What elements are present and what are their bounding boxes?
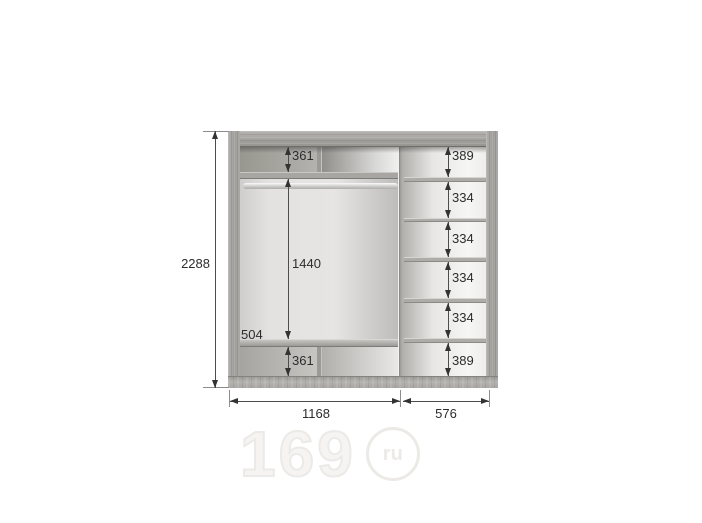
watermark-ru-circle-icon: ru bbox=[366, 427, 420, 481]
watermark-number: 169 bbox=[240, 422, 356, 486]
dim-arrow bbox=[445, 330, 451, 338]
bottom-cubby-divider bbox=[317, 347, 322, 376]
dim-label-right-1: 389 bbox=[452, 149, 474, 162]
dim-arrow bbox=[212, 380, 218, 388]
dim-arrow bbox=[285, 147, 291, 155]
dim-arrow bbox=[285, 179, 291, 187]
dim-arrow bbox=[445, 222, 451, 230]
hanging-rod bbox=[243, 183, 398, 189]
frame-right bbox=[486, 131, 498, 388]
dim-arrow bbox=[285, 164, 291, 172]
dim-arrow bbox=[445, 210, 451, 218]
left-top-shelf bbox=[240, 172, 398, 179]
dim-arrow bbox=[392, 398, 400, 404]
dim-arrow bbox=[212, 131, 218, 139]
dim-arrow bbox=[285, 368, 291, 376]
dim-label-total-height: 2288 bbox=[172, 257, 210, 270]
dim-label-shelf-depth: 504 bbox=[241, 328, 263, 341]
bottom-right-cubby-back bbox=[322, 347, 398, 376]
dim-label-left-bottom: 361 bbox=[292, 354, 314, 367]
dim-label-width-right: 576 bbox=[420, 407, 472, 420]
dim-arrow bbox=[285, 347, 291, 355]
dim-arrow bbox=[445, 182, 451, 190]
frame-top bbox=[228, 131, 498, 147]
extension-line-bottom-c bbox=[489, 390, 490, 407]
left-lower-shelf bbox=[240, 339, 398, 347]
dim-label-right-2: 334 bbox=[452, 191, 474, 204]
watermark-tld: ru bbox=[383, 443, 403, 466]
watermark-logo: 169 ru bbox=[240, 422, 420, 486]
frame-bottom bbox=[228, 376, 498, 388]
dim-label-hanging: 1440 bbox=[292, 257, 321, 270]
dim-arrow bbox=[230, 398, 238, 404]
dim-arrow bbox=[445, 147, 451, 155]
dim-label-right-3: 334 bbox=[452, 232, 474, 245]
dim-arrow bbox=[445, 303, 451, 311]
dim-arrow bbox=[445, 169, 451, 177]
dim-line-width-right bbox=[403, 401, 489, 402]
dim-label-left-top: 361 bbox=[292, 149, 314, 162]
dim-arrow bbox=[445, 262, 451, 270]
frame-left bbox=[228, 131, 240, 388]
dim-arrow bbox=[285, 331, 291, 339]
wardrobe-diagram: 2288 361 1440 504 361 389 334 334 334 33… bbox=[0, 0, 702, 523]
dim-label-right-6: 389 bbox=[452, 354, 474, 367]
dim-arrow bbox=[445, 368, 451, 376]
dim-label-right-5: 334 bbox=[452, 311, 474, 324]
dim-line-width-left bbox=[230, 401, 400, 402]
dim-arrow bbox=[445, 290, 451, 298]
dim-arrow bbox=[445, 343, 451, 351]
dim-arrow bbox=[445, 249, 451, 257]
dim-label-right-4: 334 bbox=[452, 271, 474, 284]
dim-arrow bbox=[481, 398, 489, 404]
dim-arrow bbox=[403, 398, 411, 404]
extension-line-bottom-b bbox=[400, 390, 401, 407]
dim-line-total-height bbox=[215, 131, 216, 388]
dim-line-hanging bbox=[288, 179, 289, 339]
